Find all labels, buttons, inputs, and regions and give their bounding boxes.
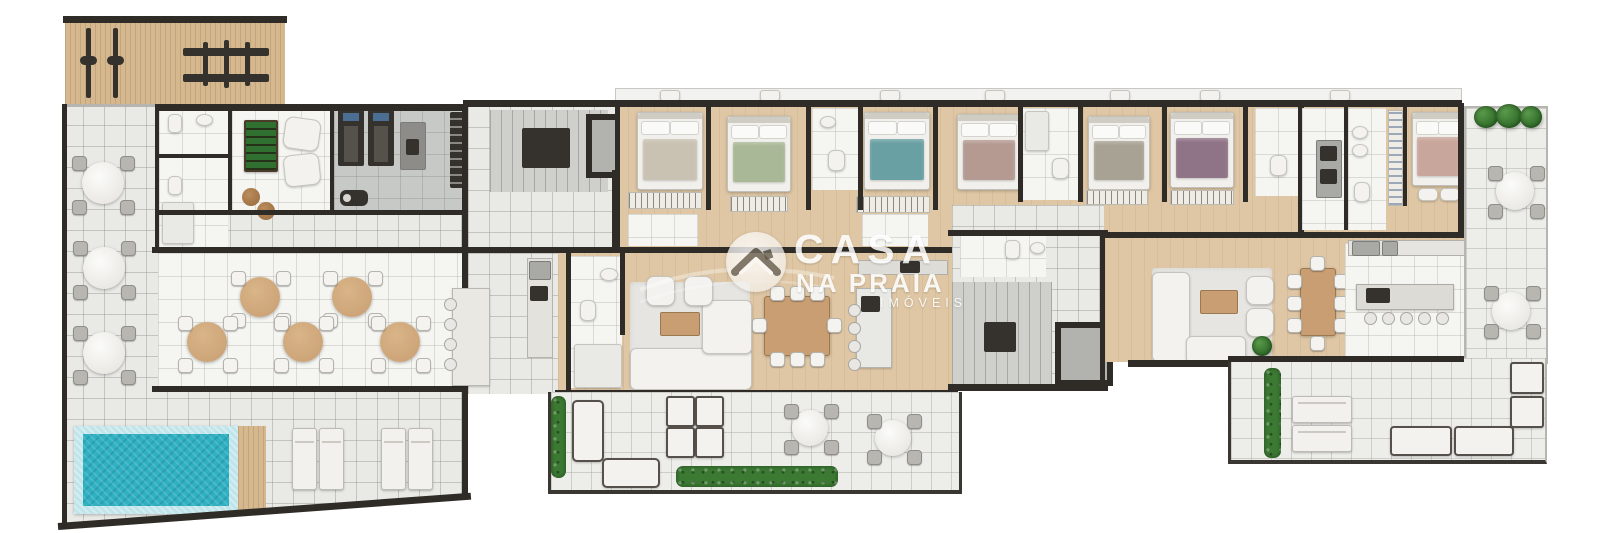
foosball-table <box>244 120 278 172</box>
floor-plan-canvas: CASA NA PRAIA IMÓVEIS <box>0 0 1600 533</box>
treadmill-2-belt <box>374 126 388 162</box>
partition-wall <box>706 106 711 210</box>
wardrobe-1 <box>628 192 702 209</box>
wardrobe-6 <box>1170 190 1234 205</box>
dining-b-chair <box>1310 336 1325 351</box>
bed-3-cover <box>870 139 924 180</box>
hall-table-4-chair <box>274 316 289 331</box>
apartment-b-top-wall <box>1105 232 1470 238</box>
dining-a-chair <box>810 352 825 367</box>
apartments-top-wall <box>463 100 1462 107</box>
pool-lounger-2 <box>319 428 344 490</box>
exercise-bike-wheel <box>343 194 351 202</box>
pool-lounger-4 <box>408 428 433 490</box>
center-terrace-table-1-chair <box>784 404 799 419</box>
outdoor-gym-deck <box>65 22 285 106</box>
gym-left-wall <box>330 110 334 212</box>
dining-b-chair <box>1287 296 1302 311</box>
center-terrace-table-2-chair <box>867 450 882 465</box>
center-terrace-hedge-vertical <box>551 396 566 478</box>
barbell-rack-1-plate <box>80 56 97 65</box>
bed-6-pillow <box>1202 121 1230 135</box>
center-terrace-sofa-horizontal <box>602 458 660 488</box>
kitchen-b-stool <box>1382 312 1395 325</box>
partition-wall <box>806 106 811 210</box>
stairwell-b-void <box>984 322 1016 352</box>
dining-b-chair <box>1287 274 1302 289</box>
washer-door <box>1320 146 1337 161</box>
hall-table-3-chair <box>223 358 238 373</box>
pool-lounger-1 <box>292 428 317 490</box>
bathroom-a2-sink <box>820 116 836 128</box>
apartment-a-coffee-table <box>660 312 700 336</box>
apartment-b-cooktop <box>1366 288 1390 303</box>
suite-wardrobe-wall <box>1403 106 1407 206</box>
hall-kitchen-island <box>452 288 490 386</box>
suite-bath-wall <box>1344 106 1348 230</box>
hall-island-stool <box>444 358 457 371</box>
core-b-wall-bottom <box>948 384 1108 391</box>
hall-table-4-chair <box>274 358 289 373</box>
bathroom-a1 <box>628 214 698 246</box>
partition-wall <box>615 106 620 247</box>
bed-3-pillow <box>897 121 926 135</box>
apartment-a-sofa <box>630 348 752 390</box>
kitchen-b-stool <box>1364 312 1377 325</box>
bed-3-headboard <box>865 113 929 119</box>
bathroom-b1-shower <box>1025 111 1049 151</box>
pool-deck-right-wall <box>462 392 468 498</box>
sink-1 <box>196 114 213 126</box>
bed-5-headboard <box>1089 117 1149 123</box>
terrace-table-2-chair <box>121 285 136 300</box>
apartment-a-toilet <box>580 300 596 321</box>
bed-7-cover <box>1417 137 1459 176</box>
hall-table-4-chair <box>319 358 334 373</box>
partition-wall <box>1018 106 1023 202</box>
terrace-table-1 <box>82 162 124 204</box>
bathroom-a3 <box>862 214 928 246</box>
kitchen-b-stool <box>1400 312 1413 325</box>
apartment-b-sofa-left <box>1152 272 1190 362</box>
apartment-a-sink <box>600 268 618 281</box>
right-terrace-top-wall <box>1228 356 1464 362</box>
right-terrace-hedge <box>1264 368 1281 458</box>
hall-table-5-chair <box>371 358 386 373</box>
bed-7-headboard <box>1413 113 1463 119</box>
bed-4-cover <box>963 140 1015 180</box>
suite-wardrobe <box>1388 110 1403 206</box>
hall-kitchen-fridge <box>529 261 551 280</box>
partition-wall <box>933 106 938 210</box>
bed-1-pillow <box>641 121 670 135</box>
bed-5-cover <box>1094 141 1144 180</box>
dining-a-chair <box>810 286 825 301</box>
left-outer-wall <box>62 104 67 524</box>
bed-2 <box>727 116 791 192</box>
right-terrace-armchair-2 <box>1510 396 1544 428</box>
apartment-a-sofa-chaise <box>702 300 752 354</box>
terrace-table-2-chair <box>73 285 88 300</box>
bed-3 <box>864 112 930 190</box>
hall-table-2-chair <box>368 271 383 286</box>
terrace-table-1-chair <box>120 156 135 171</box>
weight-station-stack <box>406 139 419 155</box>
center-terrace-armchair <box>695 396 724 427</box>
bed-4-pillow <box>989 123 1017 137</box>
treadmill-2 <box>368 110 394 166</box>
pouf-1 <box>242 188 260 206</box>
hall-island-stool <box>444 318 457 331</box>
right-terrace-armchair-1 <box>1510 362 1544 394</box>
pool <box>74 426 238 514</box>
balcony-table-2-chair <box>1484 324 1499 339</box>
center-terrace-sofa-vertical <box>572 400 604 462</box>
apartment-a-armchair-2 <box>684 276 713 306</box>
bed-7-pillow <box>1416 121 1439 135</box>
balcony-table-2-chair <box>1484 286 1499 301</box>
pool-lounger-3 <box>381 428 406 490</box>
terrace-table-2-chair <box>121 241 136 256</box>
apartment-b-kitchen-appliance-1 <box>1352 241 1380 256</box>
bed-1 <box>637 112 703 190</box>
apartment-a-dining-table <box>764 296 830 356</box>
hall-table-5-chair <box>416 316 431 331</box>
washer-dryer-stack <box>1316 140 1342 198</box>
bed-2-pillow <box>731 125 759 139</box>
apartment-a-living-top-wall <box>463 247 958 253</box>
terrace-table-1-chair <box>120 200 135 215</box>
hall-table-2 <box>332 277 372 317</box>
kitchen-b-stool <box>1418 312 1431 325</box>
treadmill-1-belt <box>344 126 358 162</box>
bed-4-pillow <box>961 123 989 137</box>
pool-water <box>83 434 229 506</box>
bed-4-headboard <box>958 115 1020 121</box>
bed-1-cover <box>643 139 697 180</box>
bed-7 <box>1412 112 1464 186</box>
balcony-table-1-chair <box>1488 204 1503 219</box>
dining-a-chair <box>827 318 842 333</box>
bed-6 <box>1170 112 1234 188</box>
terrace-edge-rail <box>62 104 158 107</box>
kitchen-a-stool <box>848 358 861 371</box>
suite-bath-sink-1 <box>1352 126 1368 139</box>
bed-4 <box>957 114 1021 190</box>
weight-station <box>400 122 426 170</box>
balcony-table-2-chair <box>1526 324 1541 339</box>
wardrobe-2 <box>730 196 788 212</box>
apartment-b-dining-table <box>1300 268 1336 336</box>
bed-2-cover <box>733 142 785 182</box>
hall-table-1-chair <box>276 271 291 286</box>
treadmill-1 <box>338 110 364 166</box>
core-b-sink <box>1030 242 1045 254</box>
balcony-table-1-chair <box>1530 204 1545 219</box>
kitchen-a-stool <box>848 340 861 353</box>
bed-5 <box>1088 116 1150 190</box>
bathroom-b2-toilet <box>1270 155 1287 176</box>
hall-table-5-chair <box>416 358 431 373</box>
restrooms-divider <box>159 154 228 158</box>
dining-a-chair <box>752 318 767 333</box>
apartment-a-armchair-1 <box>646 276 675 306</box>
bed-7-bench <box>1418 188 1438 201</box>
balcony-planter-plant <box>1496 104 1522 128</box>
terrace-table-3-chair <box>73 370 88 385</box>
toilet-1 <box>168 114 182 133</box>
hall-table-3-chair <box>178 358 193 373</box>
toilet-2 <box>168 176 182 195</box>
exercise-bike <box>340 190 368 206</box>
hall-table-5-chair <box>371 316 386 331</box>
partition-wall <box>858 106 863 210</box>
kitchen-a-stool <box>848 304 861 317</box>
barbell-rack-2-plate <box>107 56 124 65</box>
apartment-b-armchair-1 <box>1246 276 1274 305</box>
balcony-planter-plant <box>1474 106 1498 128</box>
center-terrace-table-1-chair <box>784 440 799 455</box>
pool-wood-deck <box>238 426 266 514</box>
center-terrace-table-2-chair <box>907 450 922 465</box>
center-terrace-table-1-chair <box>824 404 839 419</box>
hall-top-wall <box>152 247 464 253</box>
hall-table-1-chair <box>231 271 246 286</box>
hall-island-stool <box>444 338 457 351</box>
terrace-table-3-chair <box>121 326 136 341</box>
games-armchair-2 <box>282 152 321 188</box>
balcony-table-1-chair <box>1488 166 1503 181</box>
apartment-a-kitchen-appliance <box>900 261 920 273</box>
right-terrace-lounger-2 <box>1292 425 1352 452</box>
games-armchair-1 <box>282 116 322 153</box>
bed-1-pillow <box>670 121 699 135</box>
amenities-mid-wall <box>155 210 465 215</box>
hall-table-1 <box>240 277 280 317</box>
bed-6-headboard <box>1171 113 1233 119</box>
wardrobe-3 <box>856 196 930 213</box>
right-terrace-sofa-2 <box>1454 426 1514 456</box>
center-terrace-hedge-horizontal <box>676 466 838 487</box>
apartment-a-bathroom-wall <box>566 253 571 391</box>
partition-wall <box>1243 106 1248 202</box>
dumbbell-rack-post-1 <box>203 42 208 86</box>
hall-table-3-chair <box>178 316 193 331</box>
bed-6-cover <box>1176 138 1228 178</box>
suite-bath-toilet <box>1354 182 1370 202</box>
treadmill-2-screen <box>373 113 389 121</box>
hall-table-2-chair <box>323 271 338 286</box>
terrace-table-2 <box>83 247 125 289</box>
stairwell-a-void <box>522 128 570 168</box>
center-terrace-table-1-chair <box>824 440 839 455</box>
center-terrace-table-2-chair <box>867 414 882 429</box>
bed-6-pillow <box>1174 121 1202 135</box>
partition-wall <box>1162 106 1167 202</box>
apartment-a-cooktop <box>861 296 880 312</box>
terrace-table-3 <box>83 332 125 374</box>
hall-table-3-chair <box>223 316 238 331</box>
hall-table-4 <box>283 322 323 362</box>
dining-a-chair <box>790 352 805 367</box>
bed-5-pillow <box>1119 125 1146 139</box>
bed-5-pillow <box>1092 125 1119 139</box>
right-terrace-lounger-1 <box>1292 396 1352 423</box>
center-terrace-armchair <box>666 427 695 458</box>
dining-a-chair <box>790 286 805 301</box>
bed-3-pillow <box>868 121 897 135</box>
games-room-left-wall <box>228 110 232 212</box>
suite-bathroom <box>1348 108 1386 230</box>
kitchen-a-stool <box>848 322 861 335</box>
core-b-bathroom <box>960 235 1046 277</box>
core-b-toilet <box>1005 240 1020 259</box>
hall-kitchen-cooktop <box>530 286 548 301</box>
bathroom-a2-toilet <box>828 150 845 171</box>
dining-a-chair <box>770 286 785 301</box>
terrace-table-3-chair <box>73 326 88 341</box>
apartment-b-plant <box>1252 336 1272 356</box>
apartment-a-shower <box>574 344 622 388</box>
balcony-table-1-chair <box>1530 166 1545 181</box>
balcony-planter-plant <box>1520 106 1542 128</box>
treadmill-1-screen <box>343 113 359 121</box>
wardrobe-5 <box>1086 190 1148 205</box>
bed-2-pillow <box>759 125 787 139</box>
terrace-table-3-chair <box>121 370 136 385</box>
dumbbell-rack-post-3 <box>245 42 250 86</box>
restroom-left-wall <box>155 106 159 252</box>
bed-1-headboard <box>638 113 702 119</box>
apartment-b-armchair-2 <box>1246 308 1274 337</box>
center-terrace-armchair <box>666 396 695 427</box>
terrace-table-1-chair <box>72 156 87 171</box>
hall-island-stool <box>444 298 457 311</box>
bathroom-b2 <box>1255 108 1301 196</box>
terrace-table-1-chair <box>72 200 87 215</box>
hall-table-3 <box>187 322 227 362</box>
right-terrace-sofa-1 <box>1390 426 1452 456</box>
apartment-a-bathroom-wall-r <box>620 253 625 335</box>
hall-bottom-wall <box>152 386 466 392</box>
dining-b-chair <box>1310 256 1325 271</box>
balcony-table-2-chair <box>1526 286 1541 301</box>
dumbbell-rack-post-2 <box>224 40 229 88</box>
kitchen-b-stool <box>1436 312 1449 325</box>
partition-wall <box>1078 106 1083 202</box>
center-terrace-table-2-chair <box>907 414 922 429</box>
dining-b-chair <box>1287 318 1302 333</box>
bed-2-headboard <box>728 117 790 123</box>
bathroom-b1-toilet <box>1052 158 1069 179</box>
terrace-table-2-chair <box>73 241 88 256</box>
suite-bath-sink-2 <box>1352 144 1368 157</box>
core-b-wall-top <box>948 230 1108 236</box>
bed-7-bench-2 <box>1440 188 1460 201</box>
dining-a-chair <box>770 352 785 367</box>
deck-top-wall <box>63 16 287 23</box>
apartment-b-kitchen-appliance-2 <box>1382 241 1398 256</box>
dryer-door <box>1320 169 1337 184</box>
amenities-top-wall <box>155 104 465 111</box>
center-terrace-armchair <box>695 427 724 458</box>
shower-1 <box>162 202 194 244</box>
hall-table-4-chair <box>319 316 334 331</box>
hall-table-5 <box>380 322 420 362</box>
apartment-b-coffee-table <box>1200 290 1238 314</box>
